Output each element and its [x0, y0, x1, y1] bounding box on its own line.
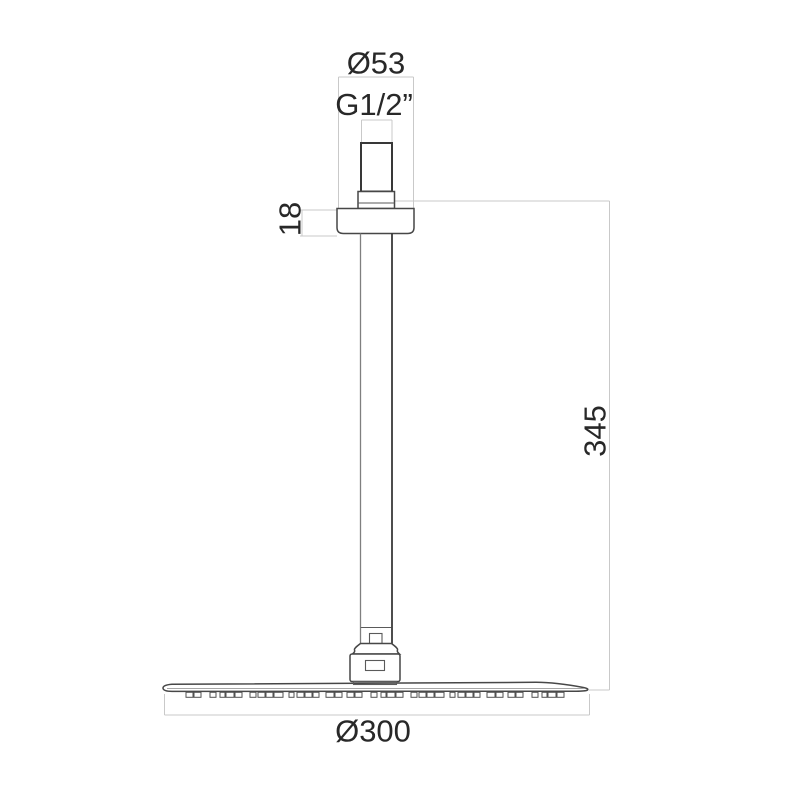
- nozzle-mark: [419, 692, 426, 697]
- shower-head-plate: [163, 682, 588, 691]
- nozzle-mark: [194, 692, 201, 697]
- label-head-width: Ø300: [335, 714, 411, 749]
- nozzle-mark: [542, 692, 547, 697]
- nozzle-mark: [250, 692, 256, 697]
- nozzle-mark: [532, 692, 538, 697]
- nozzle-mark: [487, 692, 495, 697]
- nozzle-mark: [387, 692, 395, 697]
- nozzle-mark: [411, 692, 417, 697]
- nozzle-mark: [226, 692, 234, 697]
- nozzle-mark: [313, 692, 319, 697]
- nozzle-mark: [274, 692, 283, 697]
- nozzle-mark: [258, 692, 265, 697]
- nozzle-mark: [347, 692, 354, 697]
- nozzle-mark: [496, 692, 503, 697]
- nozzle-mark: [557, 692, 564, 697]
- nozzle-mark: [548, 692, 556, 697]
- joint-housing: [350, 654, 400, 682]
- nozzle-mark: [508, 692, 515, 697]
- nozzle-row: [186, 692, 564, 697]
- nozzle-mark: [466, 692, 473, 697]
- swivel-skirt: [353, 644, 400, 655]
- plate-outline: [163, 682, 588, 691]
- nozzle-mark: [450, 692, 455, 697]
- lower-connector-notch: [370, 634, 383, 644]
- nozzle-mark: [427, 692, 434, 697]
- nozzle-mark: [371, 692, 377, 697]
- nozzle-mark: [326, 692, 334, 697]
- nozzle-mark: [305, 692, 312, 697]
- nozzle-mark: [516, 692, 523, 697]
- dimension-labels: Ø53 G1/2” 18 345 Ø300: [273, 46, 613, 749]
- label-arm-length: 345: [578, 405, 613, 457]
- thread-connector: [361, 143, 392, 192]
- nozzle-mark: [435, 692, 444, 697]
- nozzle-mark: [355, 692, 362, 697]
- nozzle-mark: [186, 692, 193, 697]
- nozzle-mark: [220, 692, 225, 697]
- technical-drawing-canvas: Ø53 G1/2” 18 345 Ø300: [0, 0, 800, 800]
- label-escutcheon-height: 18: [273, 202, 308, 236]
- nozzle-mark: [235, 692, 242, 697]
- nozzle-mark: [335, 692, 342, 697]
- escutcheon-flange: [337, 209, 414, 234]
- label-thread-size: G1/2”: [335, 87, 413, 122]
- nozzle-mark: [381, 692, 386, 697]
- nozzle-mark: [210, 692, 216, 697]
- label-top-diameter: Ø53: [347, 46, 406, 81]
- nozzle-mark: [297, 692, 304, 697]
- nozzle-mark: [289, 692, 294, 697]
- nozzle-mark: [474, 692, 480, 697]
- nozzle-mark: [266, 692, 273, 697]
- shower-arm-drawing: Ø53 G1/2” 18 345 Ø300: [0, 0, 800, 800]
- nozzle-mark: [396, 692, 403, 697]
- collar: [358, 192, 395, 209]
- shower-arm-assembly: [337, 143, 414, 685]
- nozzle-mark: [458, 692, 465, 697]
